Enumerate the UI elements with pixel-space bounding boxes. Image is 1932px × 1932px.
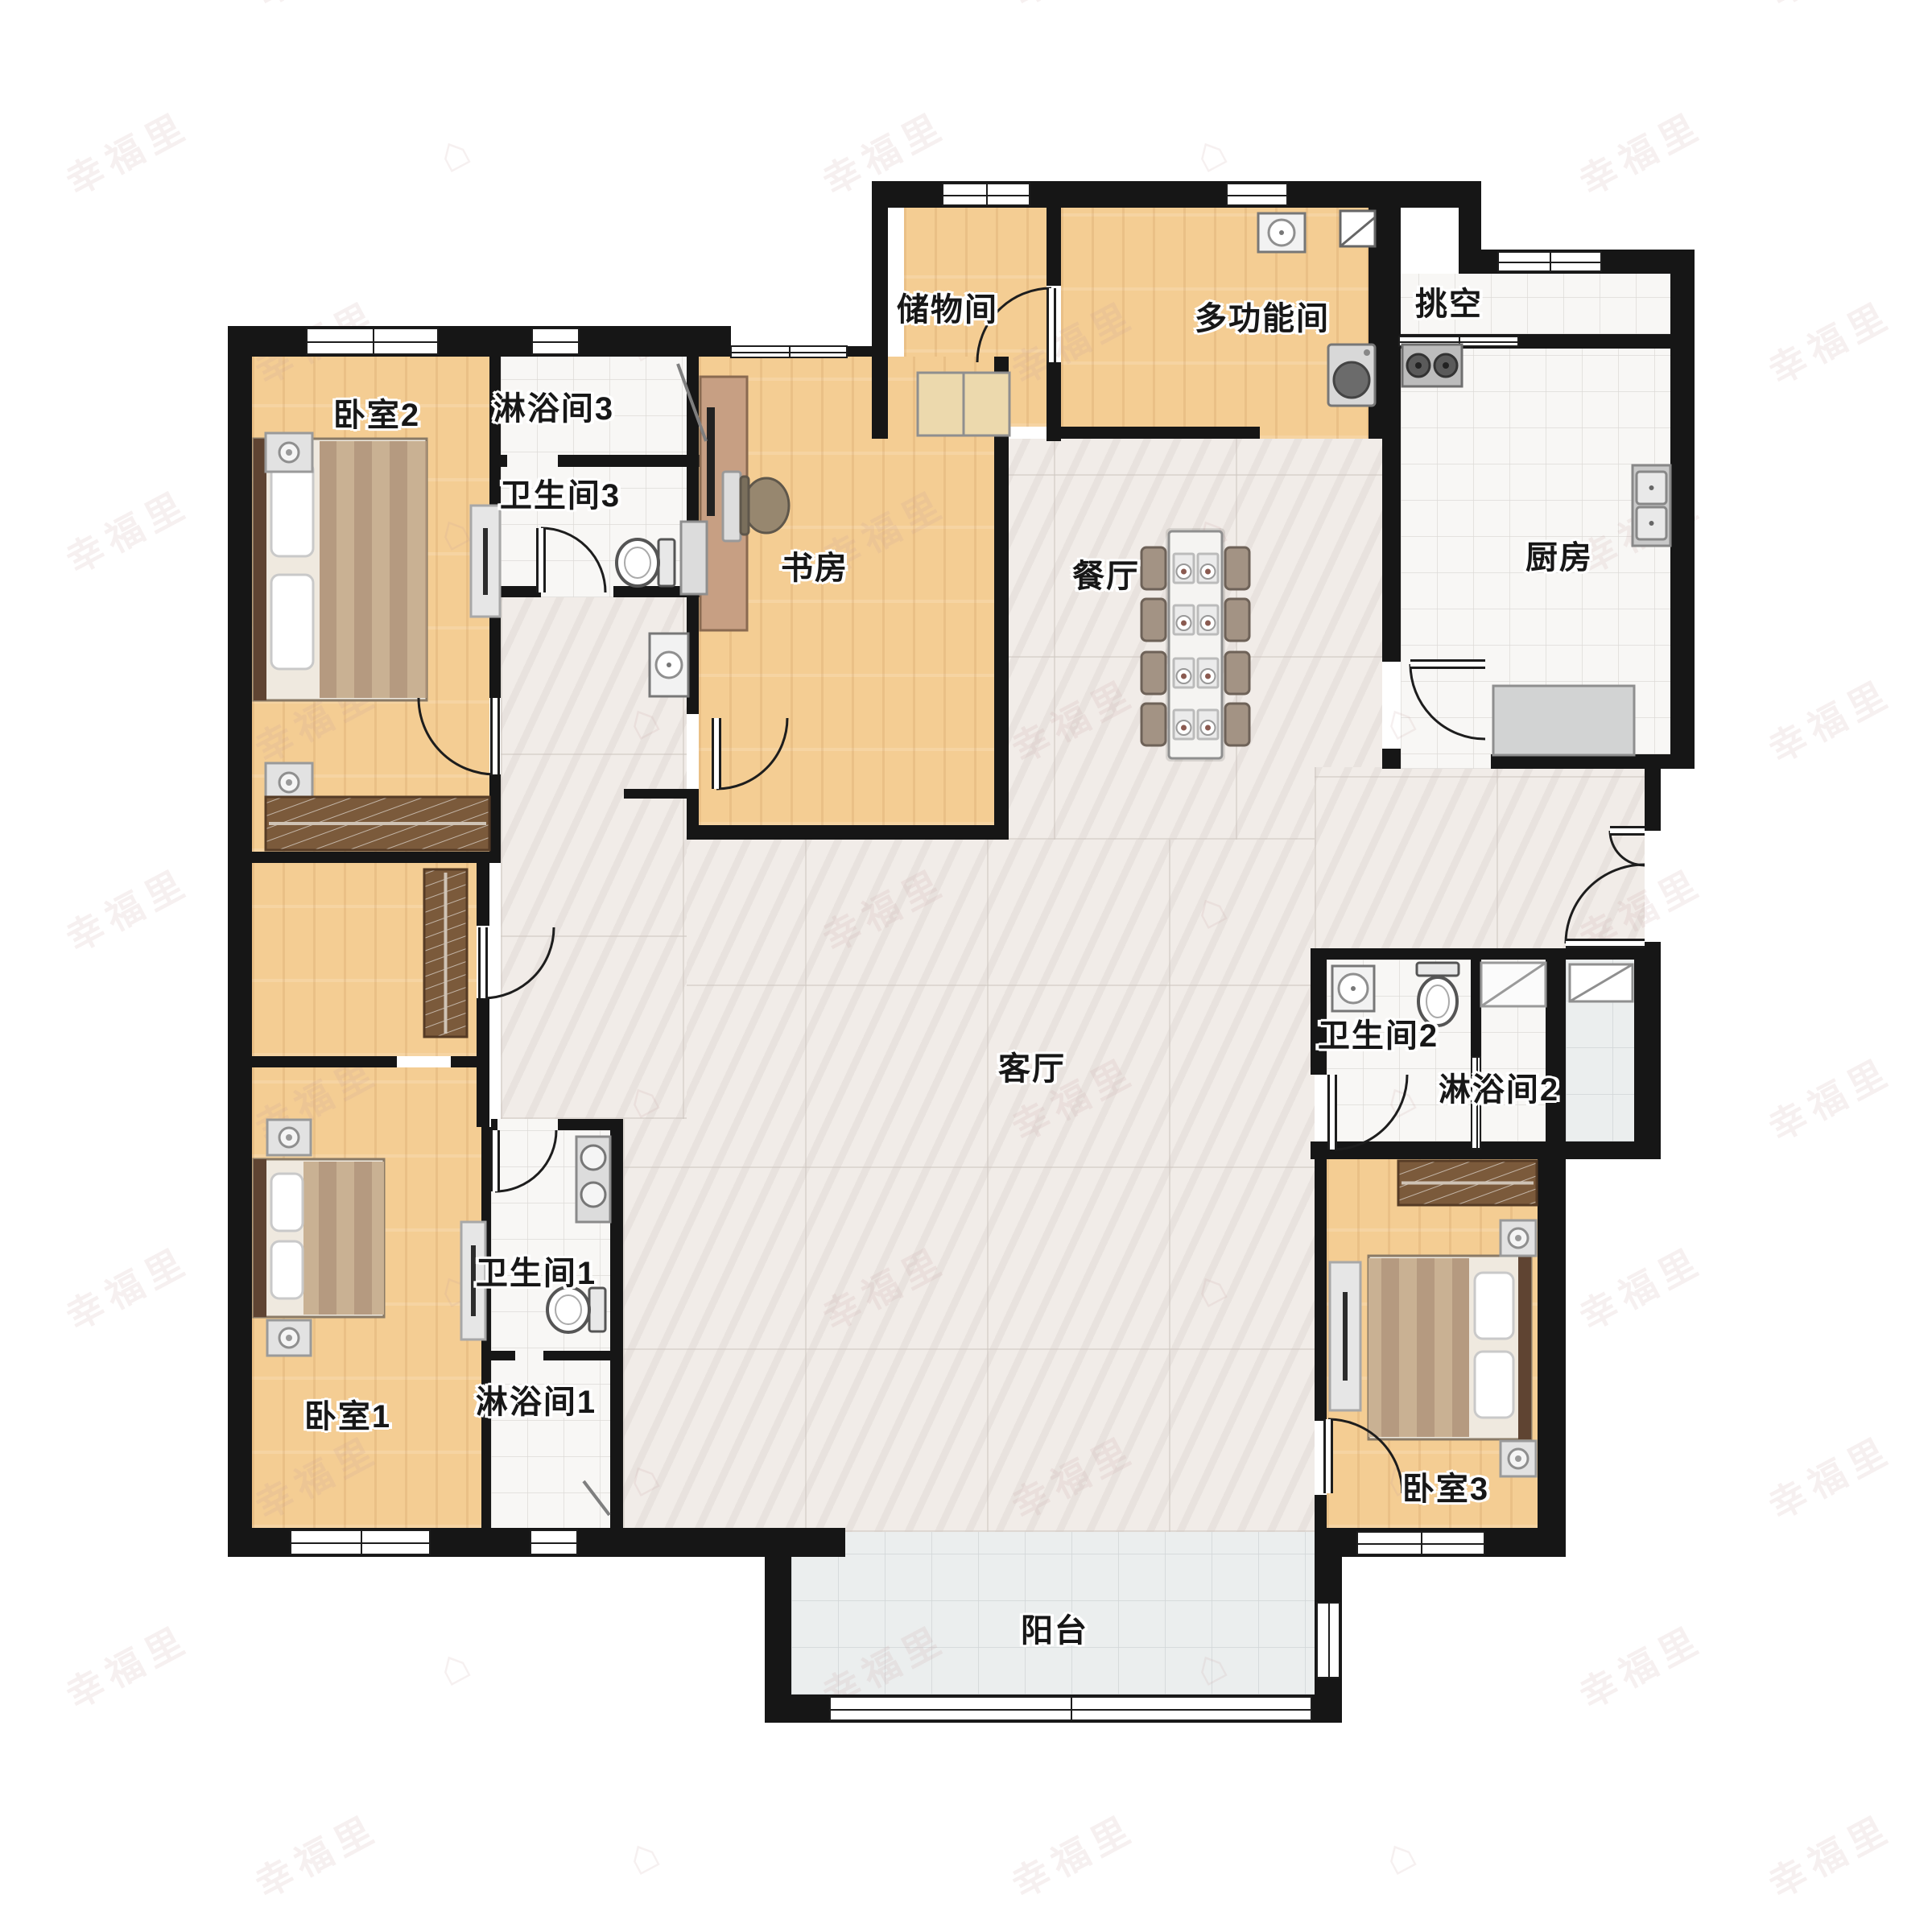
- room-label-dining: 餐厅: [1072, 560, 1140, 592]
- room-label-shower2: 淋浴间2: [1439, 1074, 1559, 1106]
- room-label-balcony: 阳台: [1021, 1615, 1088, 1647]
- room-label-kitchen: 厨房: [1525, 542, 1593, 574]
- room-label-toilet2: 卫生间2: [1318, 1020, 1439, 1052]
- room-label-void: 挑空: [1415, 288, 1483, 320]
- room-label-storage: 储物间: [897, 294, 998, 326]
- room-label-bedroom2: 卧室2: [333, 399, 420, 431]
- room-label-living: 客厅: [998, 1053, 1066, 1085]
- room-label-bedroom3: 卧室3: [1402, 1473, 1489, 1505]
- room-label-multifunction: 多功能间: [1195, 303, 1330, 335]
- room-label-shower1: 淋浴间1: [476, 1386, 597, 1418]
- room-label-bedroom1: 卧室1: [304, 1401, 391, 1433]
- floor-plan: ⌂幸福里⌂幸福里⌂幸福里幸福里⌂幸福里⌂幸福里⌂⌂幸福里⌂幸福里⌂幸福里幸福里⌂…: [0, 0, 1932, 1932]
- room-label-toilet1: 卫生间1: [476, 1257, 597, 1290]
- room-label-toilet3: 卫生间3: [500, 480, 621, 512]
- room-label-study: 书房: [781, 552, 848, 584]
- room-label-shower3: 淋浴间3: [493, 393, 614, 425]
- labels-layer: 卧室2淋浴间3卫生间3书房储物间多功能间挑空厨房餐厅客厅卫生间2淋浴间2卫生间1…: [0, 0, 1932, 1932]
